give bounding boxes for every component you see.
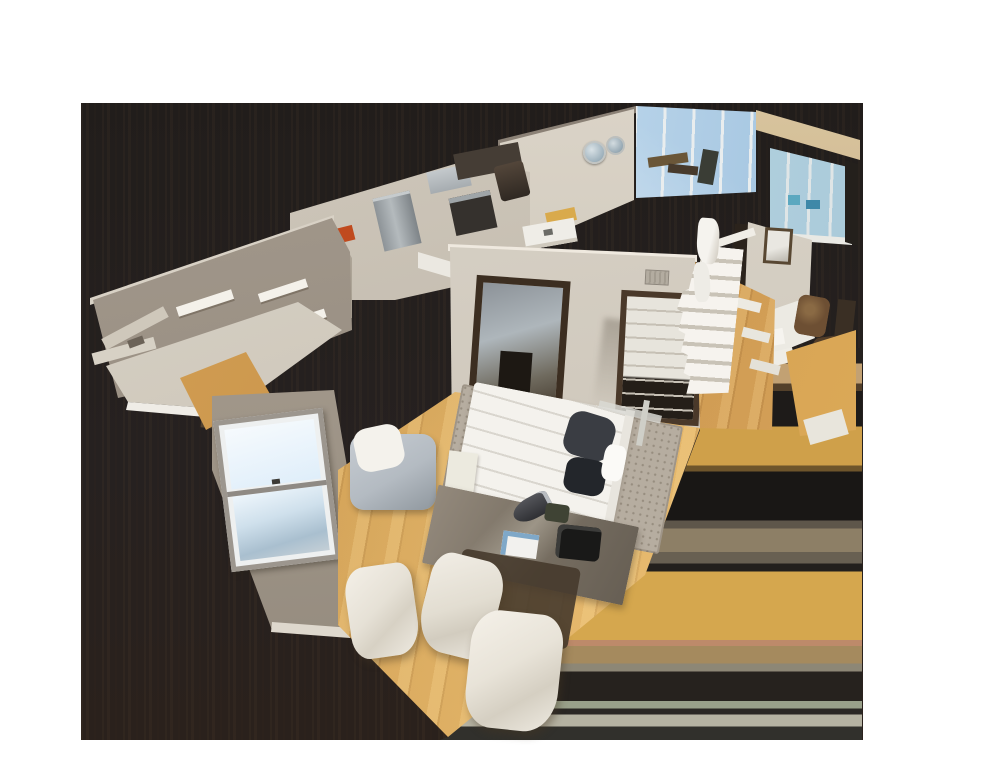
dollhouse-3d-view[interactable] <box>0 0 994 779</box>
glass-reflection <box>788 195 800 205</box>
armchair <box>350 434 436 510</box>
desk-clutter <box>544 502 570 523</box>
window-latch <box>272 478 281 484</box>
round-mirror-icon <box>583 141 606 164</box>
glass-reflection <box>806 200 820 209</box>
white-throw <box>351 422 407 475</box>
wall-vent <box>645 269 670 285</box>
bedroom-window <box>213 408 341 572</box>
white-chair <box>342 561 422 662</box>
planter-basket <box>593 172 636 203</box>
round-mirror-icon <box>606 136 625 155</box>
window-lower-sash <box>232 485 329 561</box>
picture-frame <box>763 227 793 265</box>
white-drape <box>695 217 720 264</box>
camera-bag <box>555 524 602 562</box>
